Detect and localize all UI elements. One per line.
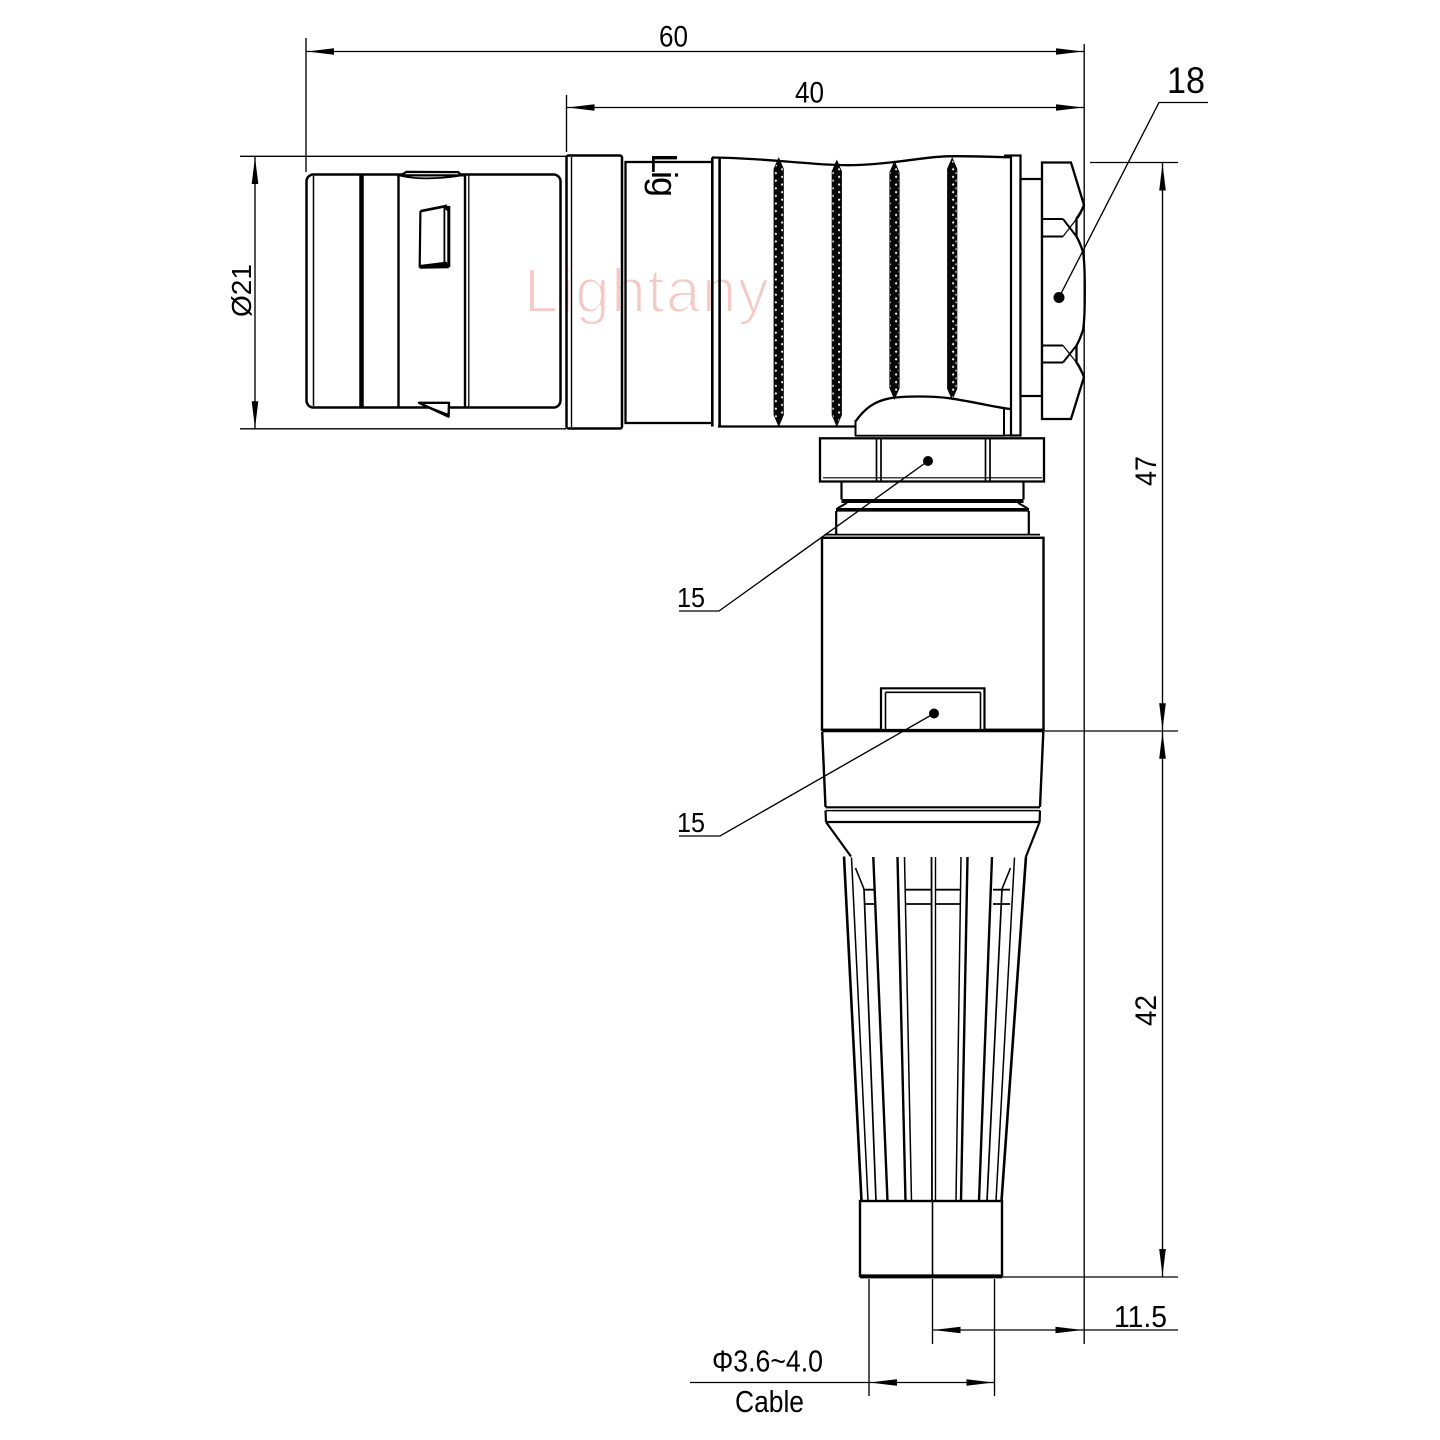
svg-text:Lig: Lig bbox=[644, 153, 685, 195]
svg-text:11.5: 11.5 bbox=[1114, 1299, 1167, 1334]
svg-text:Φ3.6~4.0: Φ3.6~4.0 bbox=[712, 1344, 823, 1379]
svg-text:42: 42 bbox=[1130, 995, 1163, 1026]
svg-text:60: 60 bbox=[659, 21, 688, 54]
svg-text:Cable: Cable bbox=[735, 1384, 804, 1419]
svg-text:15: 15 bbox=[677, 582, 705, 613]
svg-text:Ø21: Ø21 bbox=[226, 264, 257, 317]
svg-text:18: 18 bbox=[1167, 60, 1205, 101]
svg-text:40: 40 bbox=[795, 77, 824, 110]
svg-text:47: 47 bbox=[1130, 456, 1163, 486]
svg-text:15: 15 bbox=[677, 807, 705, 838]
